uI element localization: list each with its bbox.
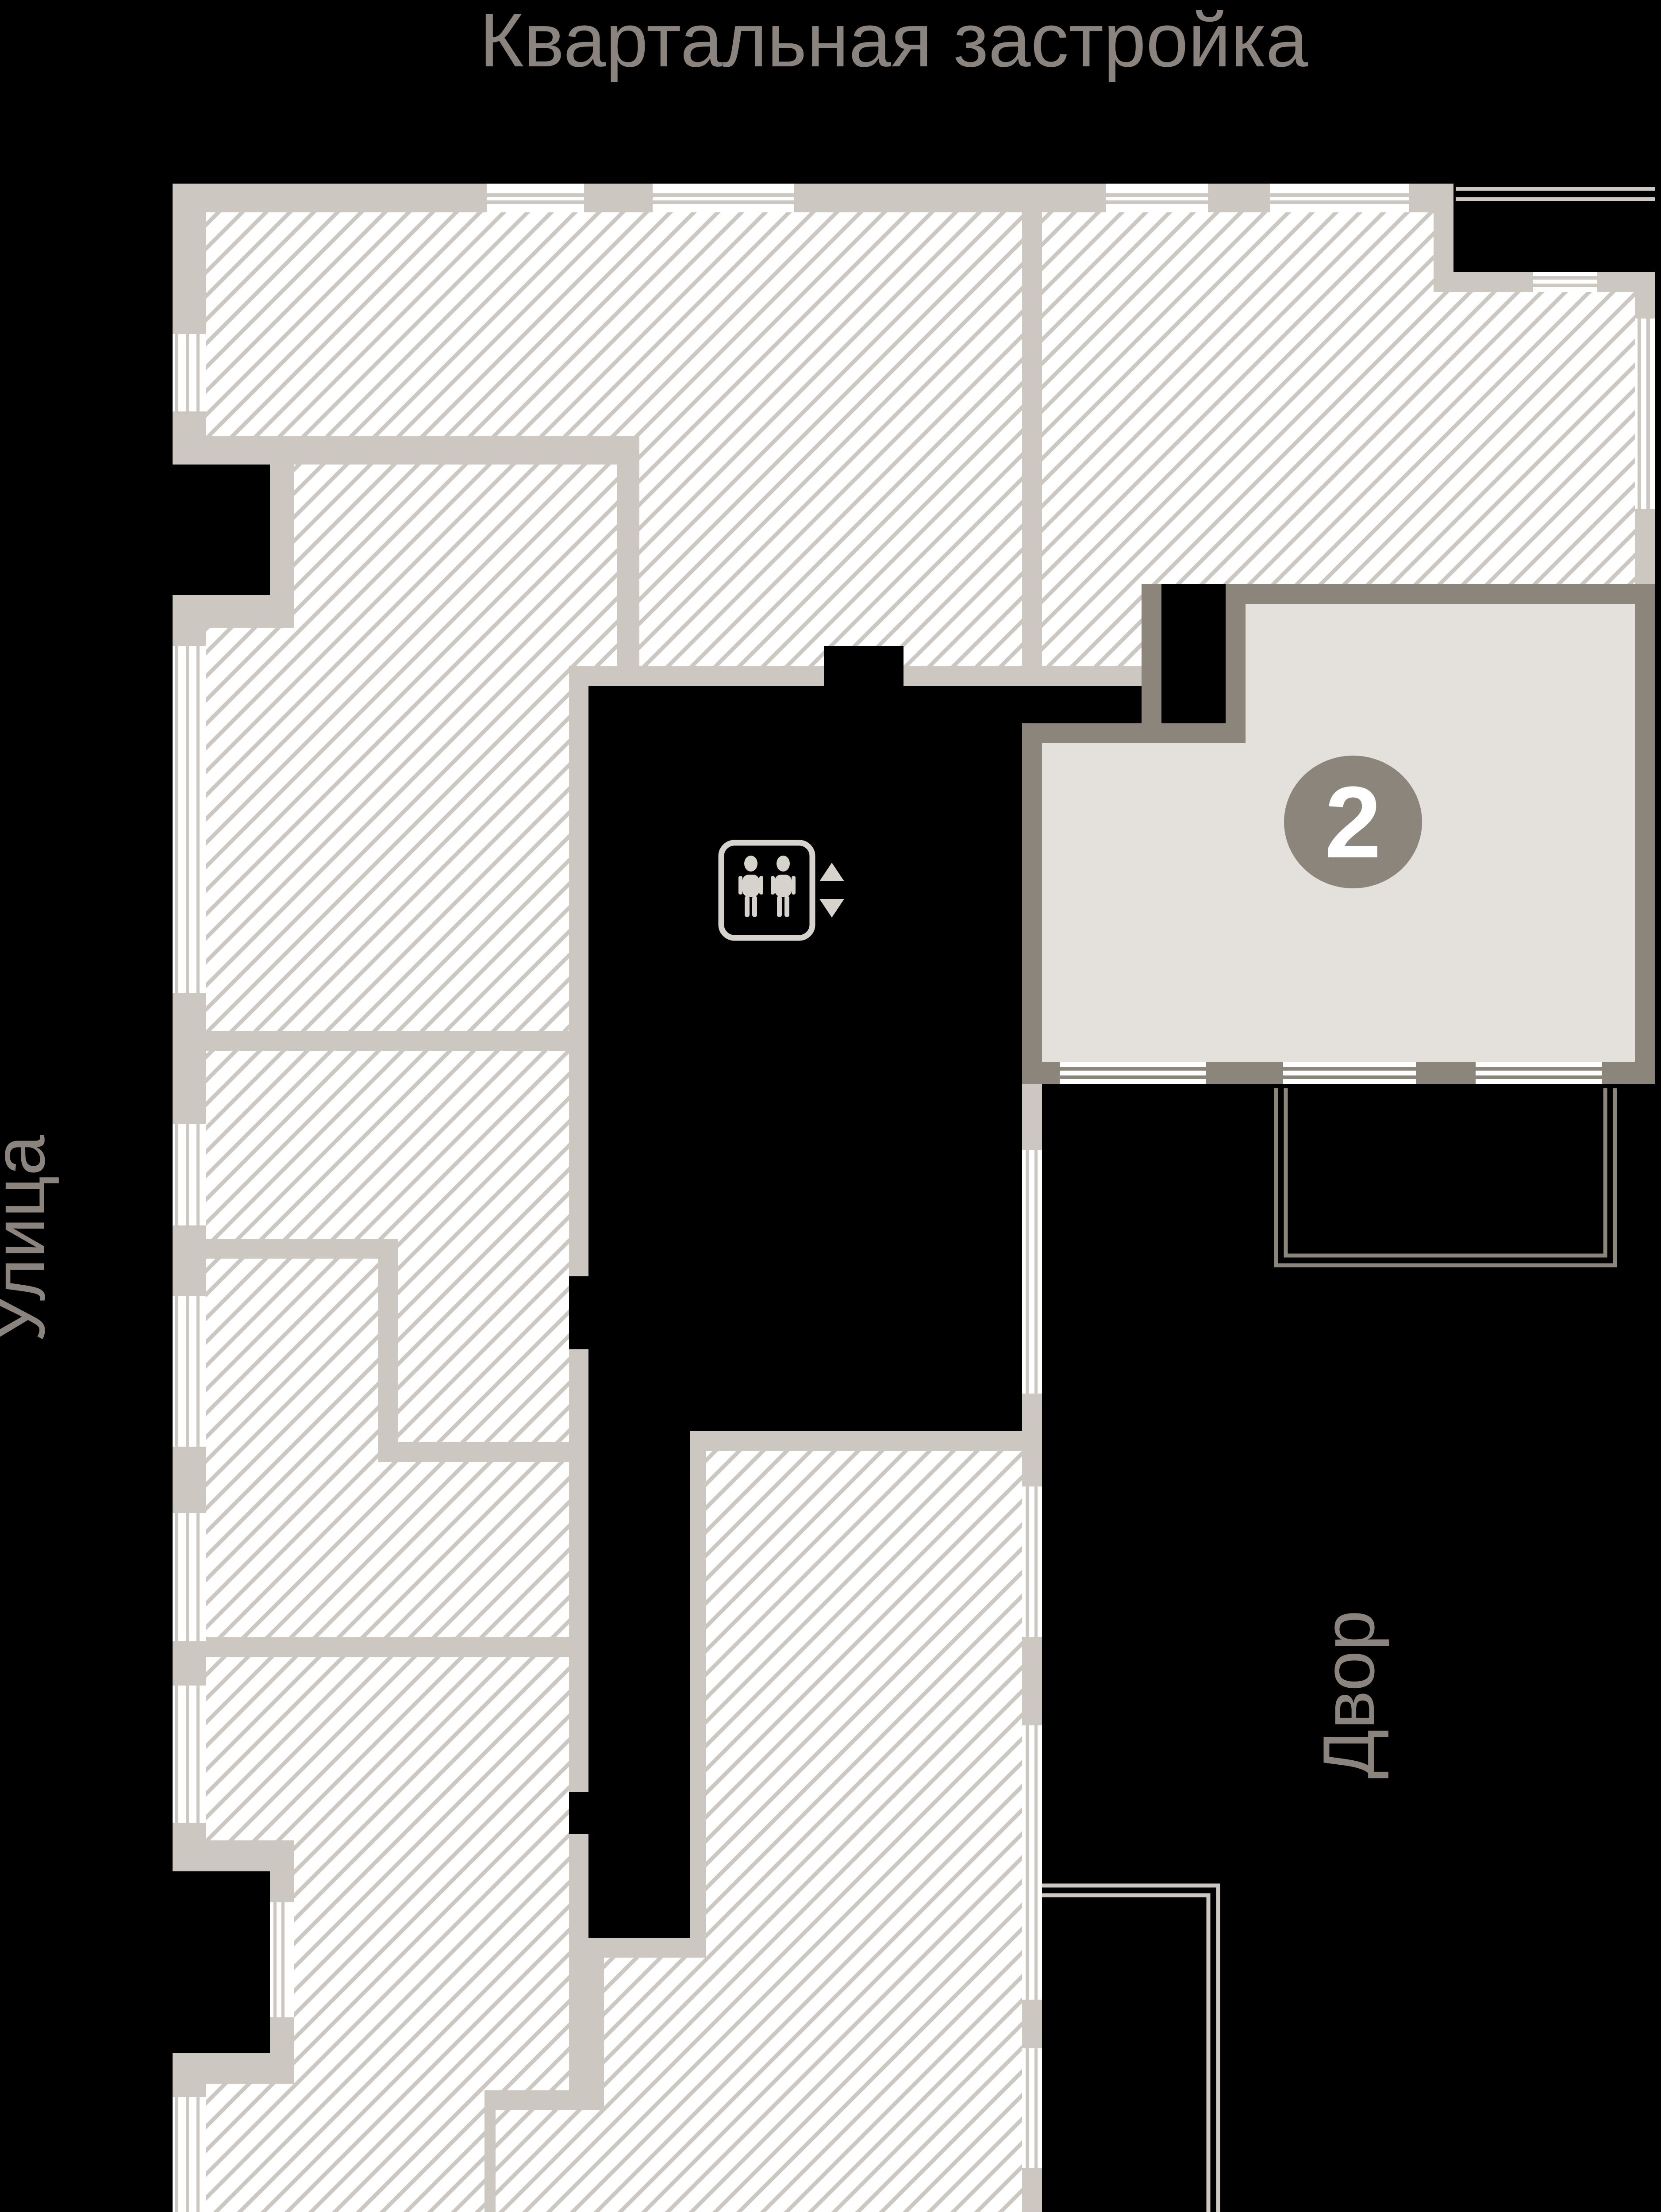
floor-plan-page: 2 Квартальная застройка Улица Двор [0, 0, 1661, 2212]
window-unit-3 [1476, 1062, 1602, 1084]
elevator-person-left [738, 856, 763, 917]
facade-notch-left-upper [173, 465, 270, 595]
unit-2-number: 2 [1325, 765, 1381, 879]
window-left-2 [173, 646, 206, 993]
window-left-1 [173, 334, 206, 411]
window-court-3 [1022, 1725, 1042, 2000]
window-court-4 [1022, 2048, 1042, 2168]
window-left-7 [173, 2097, 206, 2212]
window-notch-tr [1533, 272, 1597, 292]
window-court-1 [1022, 1150, 1042, 1394]
facade-notch-left-lower [173, 1871, 270, 2053]
triangle-up-icon [819, 863, 844, 881]
window-left-3 [173, 1124, 206, 1225]
courtyard-label: Двор [1308, 1610, 1389, 1778]
floor-plan: 2 Квартальная застройка Улица Двор [0, 0, 1661, 2212]
window-top-1 [487, 184, 584, 212]
window-notch-b [270, 1902, 294, 2017]
unit-2-entry-notch [1161, 584, 1226, 723]
elevator-person-right [771, 856, 796, 917]
window-right-upper [1635, 319, 1655, 509]
elevator-icon [721, 843, 844, 938]
window-left-6 [173, 1686, 206, 1823]
door-opening-room3 [569, 1276, 588, 1349]
facade-notch-top-right [1453, 201, 1635, 272]
window-top-2 [653, 184, 794, 212]
window-top-3 [1106, 184, 1208, 212]
window-left-5 [173, 1513, 206, 1641]
window-left-4 [173, 1296, 206, 1447]
door-opening-corridor [824, 646, 904, 686]
street-label: Улица [0, 1135, 60, 1343]
balcony-unit-2 [1276, 1088, 1615, 1265]
door-opening-room5 [569, 1792, 588, 1834]
units-hatched [206, 212, 1635, 2212]
triangle-down-icon [819, 899, 844, 918]
window-top-4 [1270, 184, 1409, 212]
window-unit-1 [1060, 1062, 1206, 1084]
window-unit-2 [1283, 1062, 1416, 1084]
window-court-2 [1022, 1486, 1042, 1637]
unit-2-badge[interactable]: 2 [1284, 756, 1422, 888]
page-title: Квартальная застройка [480, 0, 1308, 83]
balcony-bottom [1042, 1886, 1218, 2212]
